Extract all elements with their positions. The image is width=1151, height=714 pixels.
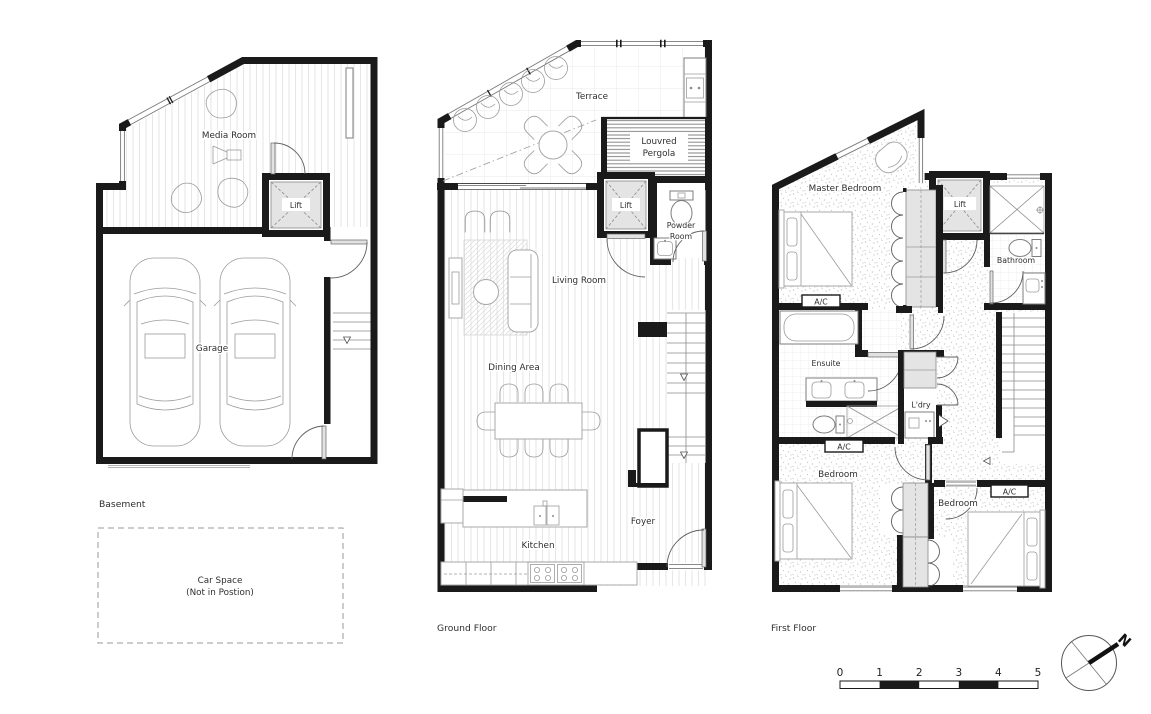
pergola-label-2: Pergola	[643, 149, 676, 159]
car-space-label-2: (Not in Postion)	[186, 588, 254, 598]
dining-table	[495, 403, 582, 439]
ac-box-bedroom2: A/C	[991, 485, 1028, 497]
scale-2: 2	[916, 667, 923, 679]
foyer-label: Foyer	[631, 517, 656, 527]
svg-text:A/C: A/C	[837, 443, 851, 452]
bedroom1-label: Bedroom	[818, 470, 858, 480]
kitchen-label: Kitchen	[521, 541, 554, 551]
bathtub-icon	[780, 311, 858, 344]
garage-label: Garage	[196, 344, 228, 354]
kitchen-left-counter	[441, 489, 463, 523]
louvred-pergola: Louvred Pergola	[601, 117, 708, 178]
understair-store	[639, 430, 667, 486]
scale-bar: 0 1 2 3 4 5	[837, 667, 1042, 689]
media-room-duct	[346, 68, 353, 138]
ensuite-door-leaf	[868, 353, 902, 358]
tv-unit	[449, 258, 462, 318]
terrace-top-railing	[581, 40, 703, 48]
floor-plan-drawing: Lift Media Room Garage Basement Car Spa	[0, 0, 1151, 714]
kitchen-island	[463, 490, 587, 527]
basin-icon	[654, 238, 676, 259]
terrace-label: Terrace	[575, 92, 608, 102]
basement-lift-door-leaf	[271, 143, 275, 174]
north-label: N	[1114, 631, 1133, 651]
ground-floor-plan: Louvred Pergola Lift	[437, 40, 709, 634]
washing-machine-icon	[905, 412, 934, 438]
ac-box-bedroom1: A/C	[825, 440, 863, 452]
svg-text:A/C: A/C	[1003, 488, 1017, 497]
first-floor-plan: Lift Bathroom	[771, 115, 1049, 635]
basement-stairs	[331, 240, 371, 349]
bedroom1-bed	[775, 481, 852, 561]
toilet-icon	[1009, 240, 1041, 257]
scale-4: 4	[995, 667, 1002, 679]
scale-0: 0	[837, 667, 844, 679]
vanity-icon	[1023, 273, 1045, 304]
north-compass-icon: N	[1062, 631, 1134, 690]
garage-stair-door	[292, 426, 326, 459]
bathroom-door-leaf	[990, 271, 993, 304]
ensuite-label: Ensuite	[812, 359, 841, 368]
bedroom1-door-leaf	[926, 445, 930, 480]
floor-plan-sheet: Lift Media Room Garage Basement Car Spa	[0, 0, 1151, 714]
car-space-label-1: Car Space	[198, 576, 243, 586]
powder-room: Powder Room	[650, 176, 709, 265]
first-lift-label: Lift	[954, 200, 966, 209]
car-left	[124, 258, 206, 446]
terrace-left-window	[437, 128, 444, 178]
master-bed	[779, 210, 852, 288]
bedroom2-bed	[968, 510, 1045, 588]
kitchen-back-bench	[441, 562, 637, 585]
dining-area-label: Dining Area	[488, 363, 539, 373]
sofa	[508, 250, 538, 332]
basement-title: Basement	[99, 499, 146, 510]
svg-text:A/C: A/C	[814, 298, 828, 307]
bathroom-top-window	[1007, 173, 1040, 180]
laundry-label: L'dry	[911, 401, 931, 410]
scale-3: 3	[955, 667, 962, 679]
media-room-label: Media Room	[202, 131, 256, 141]
ground-floor-title: Ground Floor	[437, 623, 497, 634]
ensuite-vanity-icon	[806, 378, 877, 401]
ensuite-toilet-icon	[813, 416, 844, 433]
powder-room-label-2: Room	[670, 232, 692, 241]
scale-5: 5	[1035, 667, 1042, 679]
terrace-sliding-door-wall	[437, 183, 597, 190]
garage-stair-wall	[324, 277, 331, 424]
ground-lift-label: Lift	[620, 201, 632, 210]
bedroom2-label: Bedroom	[938, 499, 978, 509]
scale-1: 1	[876, 667, 883, 679]
bbq-bench	[684, 58, 706, 118]
master-bedroom-label: Master Bedroom	[809, 184, 882, 194]
ground-lift-door-leaf	[607, 234, 645, 239]
bathroom-label: Bathroom	[997, 256, 1035, 265]
first-floor-title: First Floor	[771, 623, 816, 634]
pergola-label-1: Louvred	[641, 137, 676, 147]
basement-plan: Lift Media Room Garage Basement Car Spa	[98, 61, 374, 644]
media-room-side-window	[119, 131, 126, 181]
living-room-label: Living Room	[552, 276, 606, 286]
powder-room-label-1: Powder	[667, 221, 696, 230]
basement-lift-label: Lift	[290, 201, 302, 210]
car-space-box: Car Space (Not in Postion)	[98, 528, 343, 643]
coffee-table	[474, 280, 499, 305]
powder-door-leaf	[703, 231, 707, 261]
ac-box-ensuite: A/C	[802, 295, 840, 307]
master-east-window	[917, 138, 924, 183]
media-room-floor	[103, 64, 371, 227]
